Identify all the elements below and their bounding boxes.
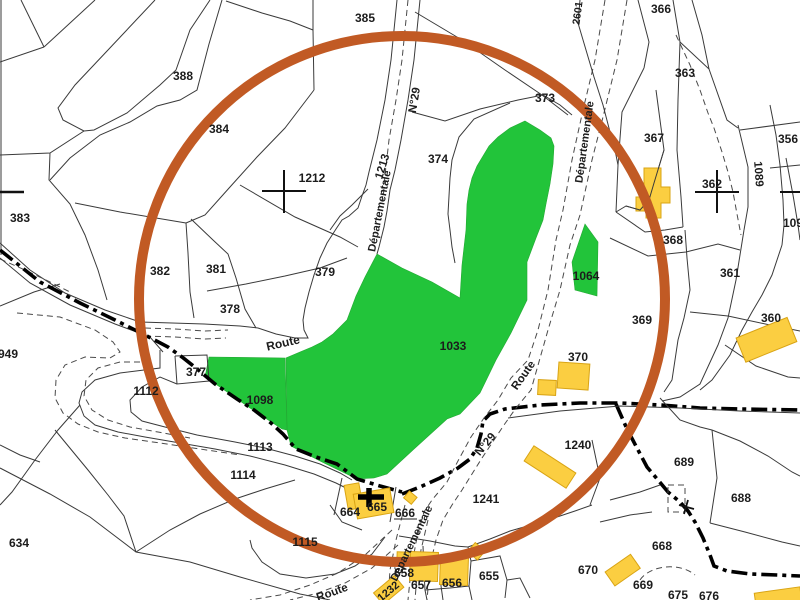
svg-text:1115: 1115 xyxy=(292,535,318,549)
svg-text:666: 666 xyxy=(395,506,415,520)
svg-text:388: 388 xyxy=(173,69,193,83)
svg-text:689: 689 xyxy=(674,455,694,469)
svg-text:1241: 1241 xyxy=(473,492,500,506)
svg-text:688: 688 xyxy=(731,491,751,505)
svg-text:383: 383 xyxy=(10,211,30,225)
svg-text:655: 655 xyxy=(479,569,499,583)
svg-text:668: 668 xyxy=(652,539,672,553)
svg-text:664: 664 xyxy=(340,505,360,519)
svg-text:1098: 1098 xyxy=(247,393,274,407)
svg-text:634: 634 xyxy=(9,536,29,550)
svg-text:1112: 1112 xyxy=(133,384,159,398)
svg-text:109: 109 xyxy=(783,216,800,230)
svg-text:382: 382 xyxy=(150,264,170,278)
svg-text:377: 377 xyxy=(186,365,206,379)
svg-text:370: 370 xyxy=(568,350,588,364)
svg-text:676: 676 xyxy=(699,589,719,600)
svg-text:675: 675 xyxy=(668,588,688,600)
svg-text:363: 363 xyxy=(675,66,695,80)
svg-text:656: 656 xyxy=(442,576,462,590)
svg-text:367: 367 xyxy=(644,131,664,145)
svg-text:362: 362 xyxy=(702,177,722,191)
svg-text:384: 384 xyxy=(209,122,229,136)
svg-text:366: 366 xyxy=(651,2,671,16)
svg-text:379: 379 xyxy=(315,265,335,279)
svg-text:657: 657 xyxy=(411,578,431,592)
svg-text:381: 381 xyxy=(206,262,226,276)
svg-text:369: 369 xyxy=(632,313,652,327)
svg-text:949: 949 xyxy=(0,347,18,361)
svg-text:1114: 1114 xyxy=(230,468,256,482)
svg-text:356: 356 xyxy=(778,132,798,146)
svg-text:373: 373 xyxy=(535,91,555,105)
svg-text:670: 670 xyxy=(578,563,598,577)
svg-text:1089: 1089 xyxy=(751,161,765,187)
svg-text:1212: 1212 xyxy=(299,171,326,185)
svg-text:669: 669 xyxy=(633,578,653,592)
svg-text:361: 361 xyxy=(720,266,740,280)
svg-text:385: 385 xyxy=(355,11,375,25)
svg-text:374: 374 xyxy=(428,152,448,166)
svg-text:378: 378 xyxy=(220,302,240,316)
svg-text:1113: 1113 xyxy=(247,440,273,454)
svg-text:368: 368 xyxy=(663,233,683,247)
svg-text:665: 665 xyxy=(367,500,387,514)
svg-text:1033: 1033 xyxy=(440,339,467,353)
svg-text:360: 360 xyxy=(761,311,781,325)
svg-text:1064: 1064 xyxy=(573,269,600,283)
svg-text:1240: 1240 xyxy=(565,438,592,452)
